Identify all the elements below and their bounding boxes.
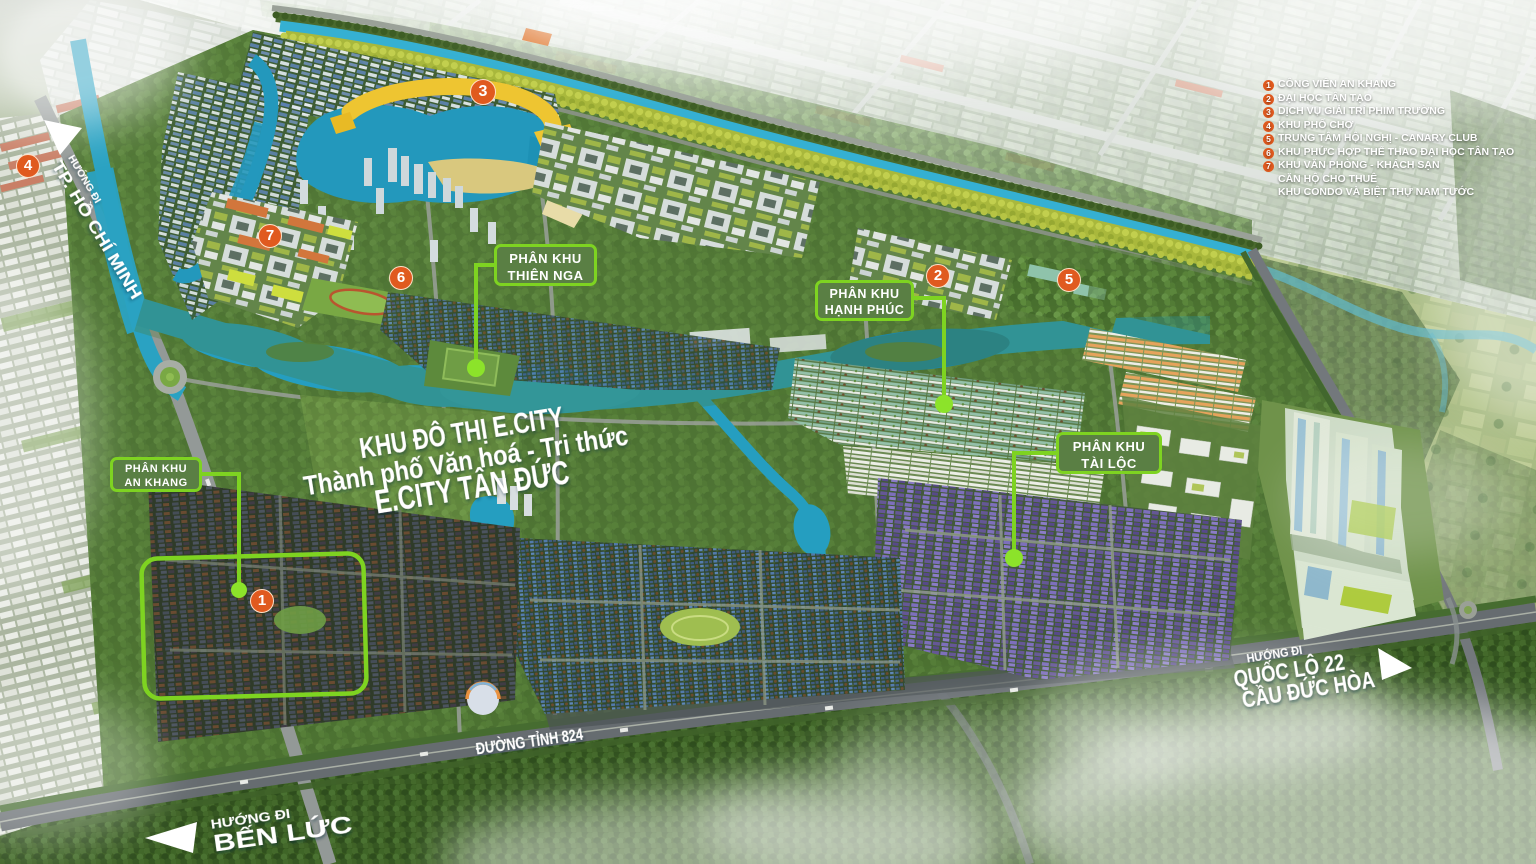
svg-text:ĐƯỜNG TỈNH 824: ĐƯỜNG TỈNH 824 xyxy=(475,725,585,759)
svg-text:TP. HỒ CHÍ MINH: TP. HỒ CHÍ MINH xyxy=(48,157,146,302)
